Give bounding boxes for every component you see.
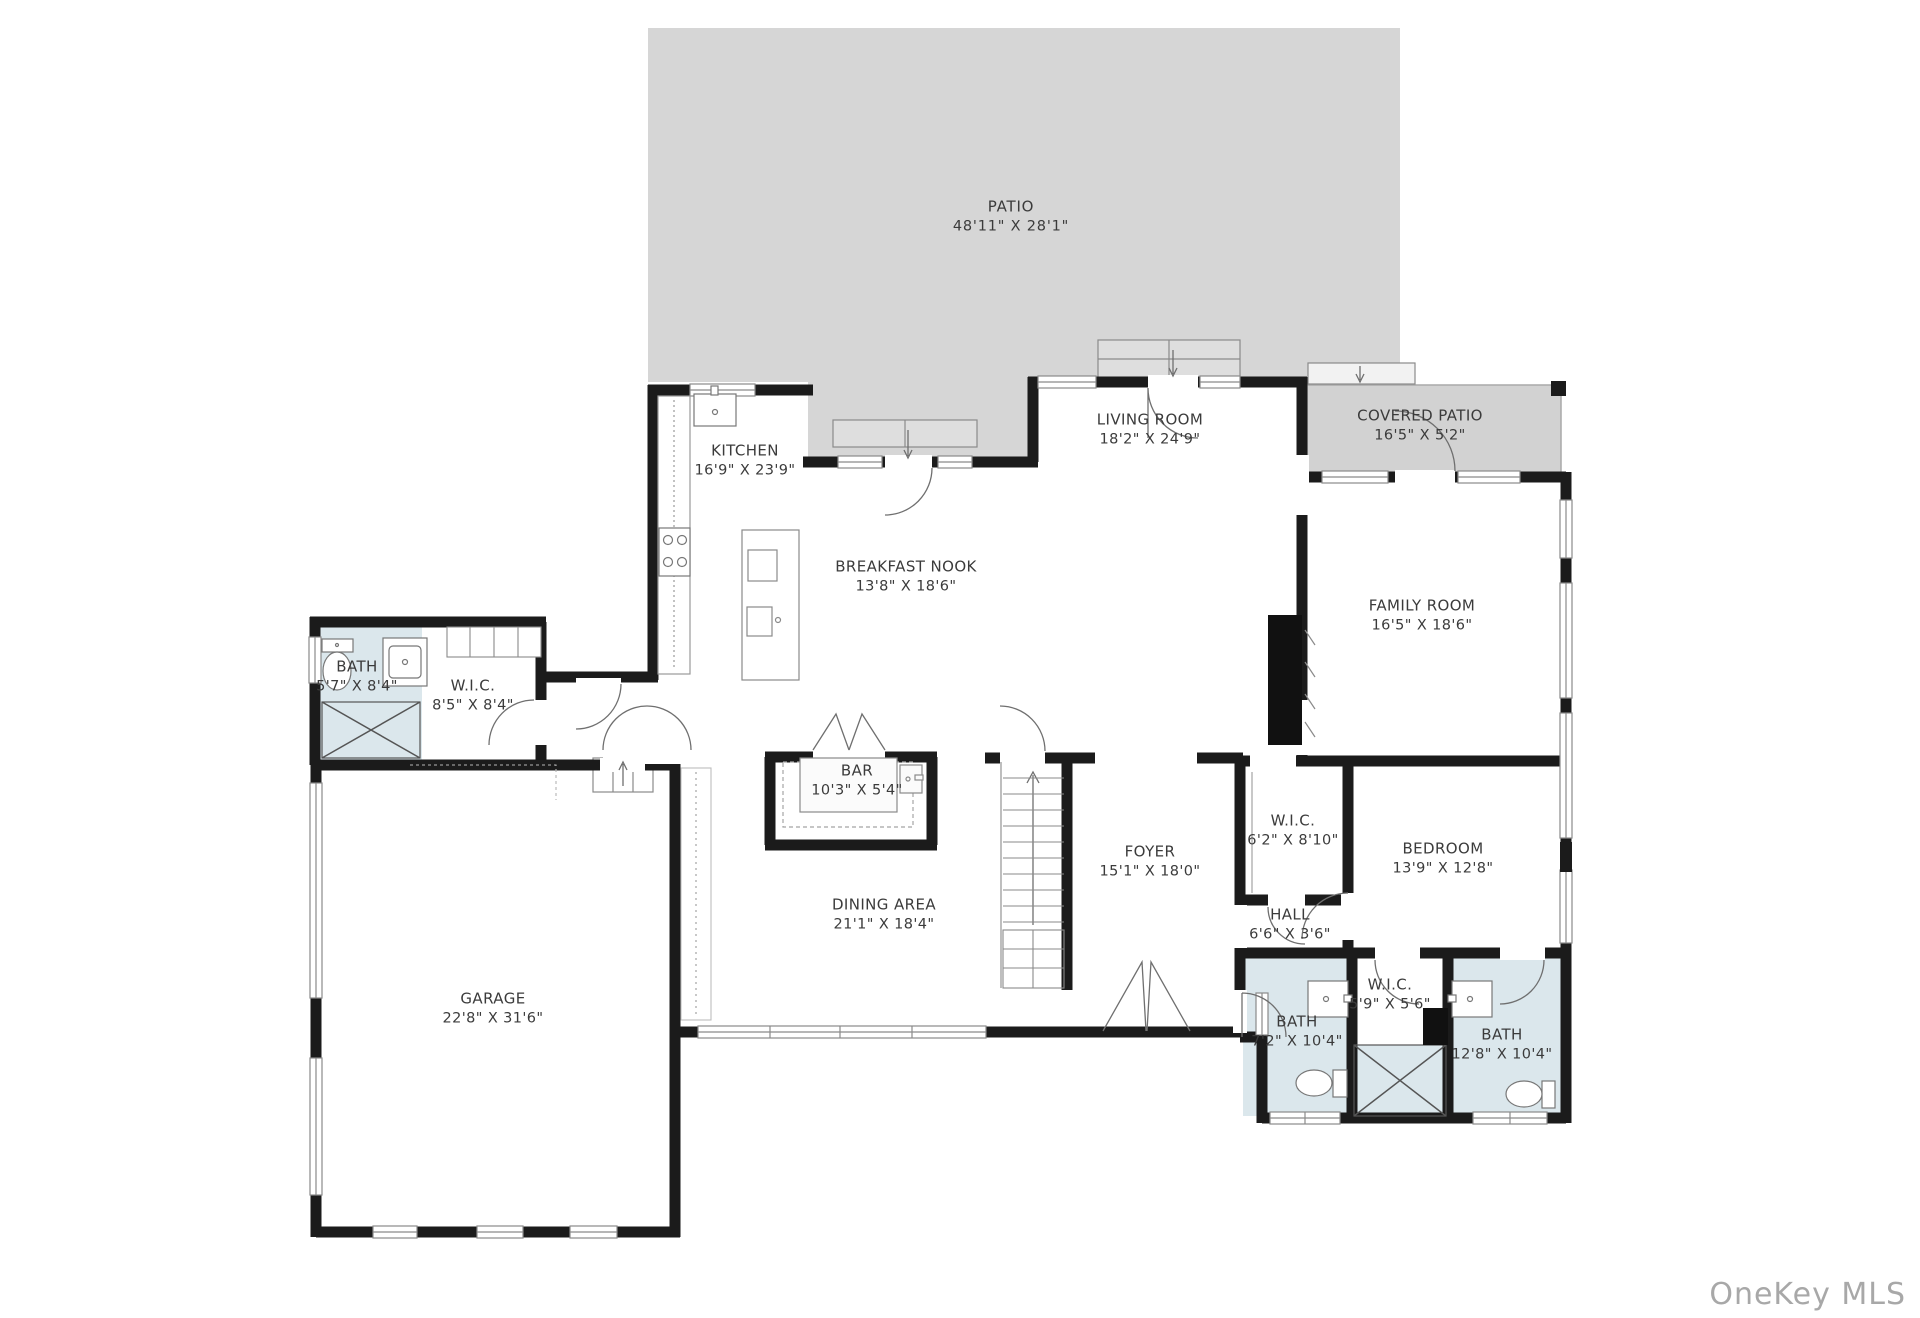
room-label-bar: BAR 10'3" X 5'4"	[811, 762, 902, 801]
room-label-living-room: LIVING ROOM 18'2" X 24'9"	[1097, 411, 1203, 450]
window	[1560, 500, 1572, 558]
room-label-bath-southeast: BATH 12'8" X 10'4"	[1451, 1026, 1552, 1065]
fireplace-icon	[1268, 615, 1315, 745]
onekey-mls-watermark: OneKey MLS	[1709, 1277, 1906, 1312]
room-label-garage: GARAGE 22'8" X 31'6"	[442, 990, 543, 1029]
room-label-wic-south: W.I.C. 5'9" X 5'6"	[1349, 976, 1431, 1015]
window	[1322, 471, 1388, 483]
toilet-icon	[1506, 1081, 1555, 1108]
window	[698, 1026, 986, 1038]
toilet-icon	[1296, 1070, 1347, 1097]
window	[373, 1226, 417, 1238]
vanity-sink-icon	[1448, 981, 1492, 1017]
floor-plan: PATIO 48'11" X 28'1" KITCHEN 16'9" X 23'…	[0, 0, 1920, 1318]
window	[310, 783, 322, 998]
window-break	[1560, 842, 1572, 872]
room-label-family-room: FAMILY ROOM 16'5" X 18'6"	[1369, 597, 1476, 636]
room-label-wic-west: W.I.C. 8'5" X 8'4"	[432, 677, 514, 716]
window	[1560, 713, 1572, 838]
room-label-hall: HALL 6'6" X 3'6"	[1249, 906, 1331, 945]
window	[1473, 1112, 1547, 1124]
window	[477, 1226, 523, 1238]
kitchen-island	[742, 530, 799, 680]
window	[938, 456, 972, 468]
window	[1200, 376, 1240, 388]
room-label-covered-patio: COVERED PATIO 16'5" X 5'2"	[1357, 407, 1483, 446]
window	[1560, 870, 1572, 943]
window	[310, 1058, 322, 1195]
window	[1560, 583, 1572, 698]
room-label-bedroom: BEDROOM 13'9" X 12'8"	[1392, 840, 1493, 879]
window	[1270, 1112, 1340, 1124]
room-label-kitchen: KITCHEN 16'9" X 23'9"	[694, 442, 795, 481]
room-label-breakfast-nook: BREAKFAST NOOK 13'8" X 18'6"	[835, 558, 977, 597]
window	[838, 456, 882, 468]
room-label-foyer: FOYER 15'1" X 18'0"	[1099, 843, 1200, 882]
window	[570, 1226, 617, 1238]
stove-icon	[659, 528, 690, 576]
room-label-bath-south: BATH 7'2" X 10'4"	[1251, 1013, 1342, 1052]
room-label-bath-west: BATH 5'7" X 8'4"	[316, 658, 398, 697]
window	[1458, 471, 1520, 483]
room-label-patio: PATIO 48'11" X 28'1"	[953, 198, 1069, 237]
room-label-wic-bedroom: W.I.C. 6'2" X 8'10"	[1247, 812, 1338, 851]
window	[1038, 376, 1096, 388]
room-label-dining-area: DINING AREA 21'1" X 18'4"	[832, 896, 936, 935]
